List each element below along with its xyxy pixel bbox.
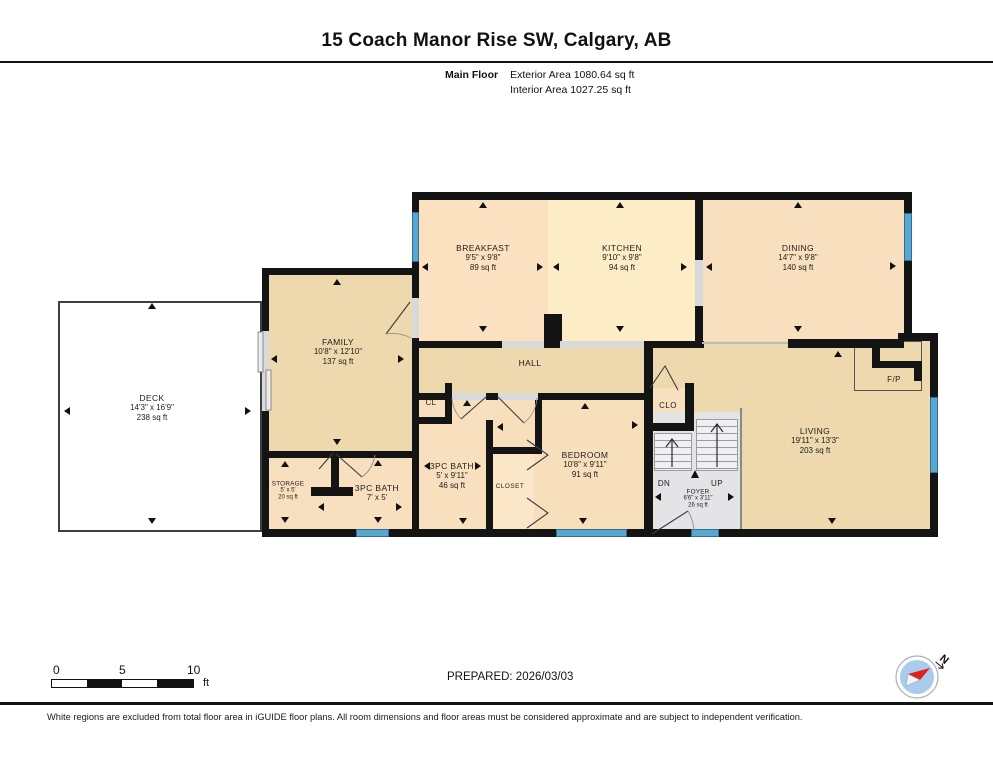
header-divider	[0, 61, 993, 63]
patio-door-opening	[262, 331, 269, 411]
room-label-family: FAMILY10'8" x 12'10"137 sq ft	[314, 337, 362, 367]
dim-arrow	[64, 407, 70, 415]
door-opening	[498, 393, 538, 400]
floor-label: Main Floor	[445, 68, 498, 98]
dim-arrow	[794, 202, 802, 208]
door-opening	[452, 393, 486, 400]
entry-door-threshold	[691, 529, 719, 537]
disclaimer-text: White regions are excluded from total fl…	[47, 712, 967, 722]
stair-flight-down	[654, 433, 692, 471]
door-opening	[412, 298, 419, 338]
dim-arrow	[553, 263, 559, 271]
wall	[535, 400, 542, 454]
dim-arrow	[463, 400, 471, 406]
room-label-cl: CL	[425, 398, 436, 408]
dim-arrow	[396, 503, 402, 511]
dim-arrow	[374, 460, 382, 466]
compass-icon: N	[890, 650, 960, 702]
wall	[262, 268, 418, 275]
stairs-down-label: DN	[658, 479, 670, 489]
dim-arrow	[479, 202, 487, 208]
room-label-foyer: FOYER6'6" x 3'11"26 sq ft	[683, 489, 712, 510]
dim-arrow	[374, 517, 382, 523]
room-label-bath5: 3PC BATH5' x 9'11"46 sq ft	[430, 461, 474, 491]
prepared-date: PREPARED: 2026/03/03	[447, 671, 573, 683]
wall	[788, 339, 904, 348]
stairs-up-label: UP	[711, 479, 723, 489]
wall-fireplace	[872, 361, 922, 368]
window	[412, 212, 419, 262]
dim-arrow	[681, 263, 687, 271]
room-label-clo: CLO	[659, 401, 677, 411]
dim-arrow	[148, 303, 156, 309]
north-label: N	[937, 653, 951, 667]
dim-arrow	[424, 462, 430, 470]
dim-arrow	[794, 326, 802, 332]
scale-tick-10: 10	[187, 663, 200, 677]
room-label-kitchen: KITCHEN9'10" x 9'8"94 sq ft	[602, 243, 642, 273]
wall	[898, 333, 938, 341]
footer-divider	[0, 702, 993, 705]
dim-arrow	[632, 421, 638, 429]
room-label-bath7: 3PC BATH7' x 5'	[355, 483, 399, 503]
dim-arrow	[616, 326, 624, 332]
room-hall	[419, 348, 645, 393]
room-label-hall: HALL	[519, 358, 542, 368]
room-boundary-line	[702, 342, 788, 344]
dim-arrow	[318, 503, 324, 511]
dim-arrow	[706, 263, 712, 271]
floorplan-page: 15 Coach Manor Rise SW, Calgary, AB Main…	[0, 0, 993, 768]
stairs-right-line	[740, 408, 742, 529]
wall	[644, 529, 938, 537]
interior-area: Interior Area 1027.25 sq ft	[510, 83, 634, 98]
room-label-storage: STORAGE5' x 5'20 sq ft	[272, 481, 305, 502]
window	[356, 529, 389, 537]
wall-opening	[560, 341, 644, 348]
scale-bar-segments	[51, 679, 194, 688]
dim-arrow	[333, 279, 341, 285]
exterior-area: Exterior Area 1080.64 sq ft	[510, 68, 634, 83]
wall	[486, 447, 535, 454]
compass-needle-north	[908, 668, 930, 680]
room-label-bedroom: BEDROOM10'8" x 9'11"91 sq ft	[562, 450, 609, 480]
scale-bar: 0 5 10 ft	[51, 663, 211, 688]
wall-fireplace	[914, 368, 922, 381]
wall	[412, 417, 452, 424]
compass-needle-south	[906, 674, 920, 686]
dim-arrow	[459, 518, 467, 524]
dim-arrow	[537, 263, 543, 271]
room-label-breakfast: BREAKFAST9'5" x 9'8"89 sq ft	[456, 243, 510, 273]
dim-arrow	[579, 518, 587, 524]
window	[904, 213, 912, 261]
scale-unit: ft	[203, 677, 209, 689]
dim-arrow	[890, 262, 896, 270]
dim-arrow	[728, 493, 734, 501]
dim-arrow	[245, 407, 251, 415]
stair-flight-up	[696, 419, 738, 471]
dim-arrow	[281, 461, 289, 467]
room-label-closet: CLOSET	[496, 482, 525, 492]
room-label-fireplace: F/P	[887, 375, 901, 385]
room-label-living: LIVING19'11" x 13'3"203 sq ft	[791, 426, 839, 456]
room-label-dining: DINING14'7" x 9'8"140 sq ft	[778, 243, 817, 273]
wall-opening	[502, 341, 544, 348]
window	[930, 397, 938, 473]
dim-arrow	[271, 355, 277, 363]
dim-arrow	[422, 263, 428, 271]
dim-arrow	[655, 493, 661, 501]
dim-arrow	[263, 478, 269, 486]
dim-arrow	[281, 517, 289, 523]
dim-arrow	[834, 351, 842, 357]
wall	[644, 345, 653, 404]
dim-arrow	[398, 355, 404, 363]
floor-summary: Main Floor Exterior Area 1080.64 sq ft I…	[445, 68, 634, 98]
dim-arrow	[497, 423, 503, 431]
door-opening	[695, 260, 703, 306]
dim-arrow	[479, 326, 487, 332]
wall	[412, 192, 912, 200]
page-title: 15 Coach Manor Rise SW, Calgary, AB	[0, 30, 993, 52]
room-label-deck: DECK14'3" x 16'9"238 sq ft	[130, 393, 174, 423]
dim-arrow	[828, 518, 836, 524]
scale-tick-5: 5	[119, 663, 126, 677]
scale-tick-0: 0	[53, 663, 60, 677]
wall	[262, 451, 418, 458]
wall	[486, 420, 493, 537]
wall	[685, 383, 694, 428]
wall	[311, 487, 353, 496]
window	[556, 529, 627, 537]
dim-arrow	[148, 518, 156, 524]
dim-arrow	[581, 403, 589, 409]
dim-arrow	[475, 462, 481, 470]
wall	[644, 423, 694, 431]
dim-arrow	[616, 202, 624, 208]
dim-arrow	[333, 439, 341, 445]
